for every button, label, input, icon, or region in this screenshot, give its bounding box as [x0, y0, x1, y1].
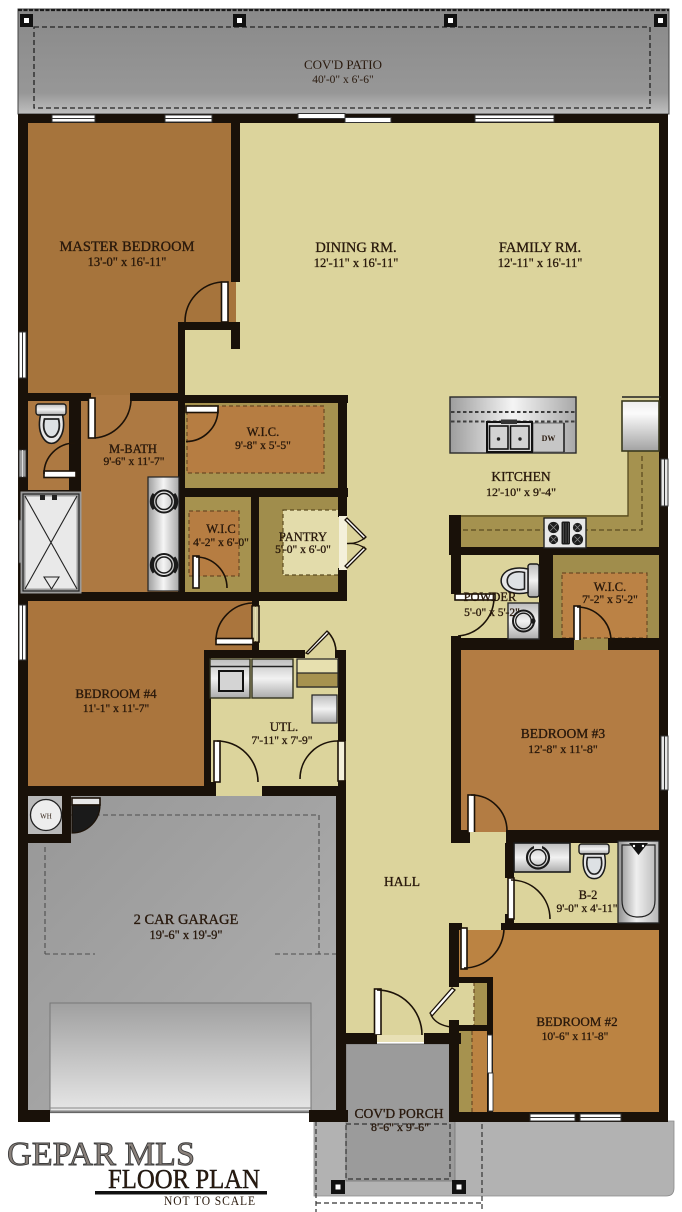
svg-text:W.I.C: W.I.C: [206, 522, 235, 536]
svg-text:PANTRY: PANTRY: [279, 530, 327, 544]
svg-text:5'-0" x 5'-2": 5'-0" x 5'-2": [464, 607, 520, 619]
svg-text:2 CAR GARAGE: 2 CAR GARAGE: [134, 912, 239, 928]
svg-text:HALL: HALL: [384, 874, 420, 889]
svg-text:9'-0" x 4'-11": 9'-0" x 4'-11": [556, 903, 617, 915]
svg-text:FLOOR PLAN: FLOOR PLAN: [108, 1164, 260, 1194]
svg-text:COV'D PORCH: COV'D PORCH: [354, 1106, 443, 1121]
svg-text:12'-11" x 16'-11": 12'-11" x 16'-11": [498, 256, 583, 270]
svg-text:KITCHEN: KITCHEN: [491, 469, 550, 484]
svg-text:9'-8" x 5'-5": 9'-8" x 5'-5": [235, 440, 291, 452]
svg-text:FAMILY RM.: FAMILY RM.: [499, 240, 581, 256]
svg-text:W.I.C.: W.I.C.: [594, 580, 627, 594]
svg-text:BEDROOM #4: BEDROOM #4: [75, 686, 157, 701]
svg-text:B-2: B-2: [579, 888, 598, 902]
svg-text:12'-8" x 11'-8": 12'-8" x 11'-8": [528, 742, 598, 756]
svg-text:BEDROOM #2: BEDROOM #2: [536, 1014, 617, 1029]
svg-text:7'-11" x 7'-9": 7'-11" x 7'-9": [251, 735, 312, 747]
svg-text:7'-2" x 5'-2": 7'-2" x 5'-2": [582, 594, 638, 606]
svg-text:DINING RM.: DINING RM.: [315, 240, 396, 256]
svg-text:DW: DW: [542, 434, 556, 443]
svg-text:BEDROOM #3: BEDROOM #3: [521, 726, 606, 741]
svg-text:MASTER BEDROOM: MASTER BEDROOM: [60, 239, 195, 255]
svg-text:40'-0" x 6'-6": 40'-0" x 6'-6": [312, 74, 373, 86]
svg-text:4'-2" x 6'-0": 4'-2" x 6'-0": [193, 537, 249, 549]
svg-text:WH: WH: [40, 813, 52, 821]
svg-text:12'-10" x 9'-4": 12'-10" x 9'-4": [486, 485, 556, 499]
svg-text:12'-11" x 16'-11": 12'-11" x 16'-11": [314, 256, 399, 270]
svg-text:10'-6" x 11'-8": 10'-6" x 11'-8": [542, 1031, 609, 1043]
svg-text:W.I.C.: W.I.C.: [247, 425, 280, 439]
svg-text:5'-0" x 6'-0": 5'-0" x 6'-0": [275, 544, 331, 556]
svg-text:13'-0" x 16'-11": 13'-0" x 16'-11": [88, 255, 167, 269]
svg-text:COV'D PATIO: COV'D PATIO: [304, 57, 382, 72]
svg-text:POWDER: POWDER: [464, 590, 517, 604]
svg-text:NOT TO SCALE: NOT TO SCALE: [164, 1194, 256, 1208]
svg-text:M-BATH: M-BATH: [109, 442, 157, 456]
svg-text:19'-6" x 19'-9": 19'-6" x 19'-9": [149, 928, 222, 942]
svg-text:11'-1" x 11'-7": 11'-1" x 11'-7": [83, 703, 149, 715]
svg-text:8'-6" x 9'-6": 8'-6" x 9'-6": [371, 1120, 429, 1134]
svg-text:UTL.: UTL.: [270, 719, 299, 734]
svg-text:9'-6" x 11'-7": 9'-6" x 11'-7": [103, 456, 164, 468]
